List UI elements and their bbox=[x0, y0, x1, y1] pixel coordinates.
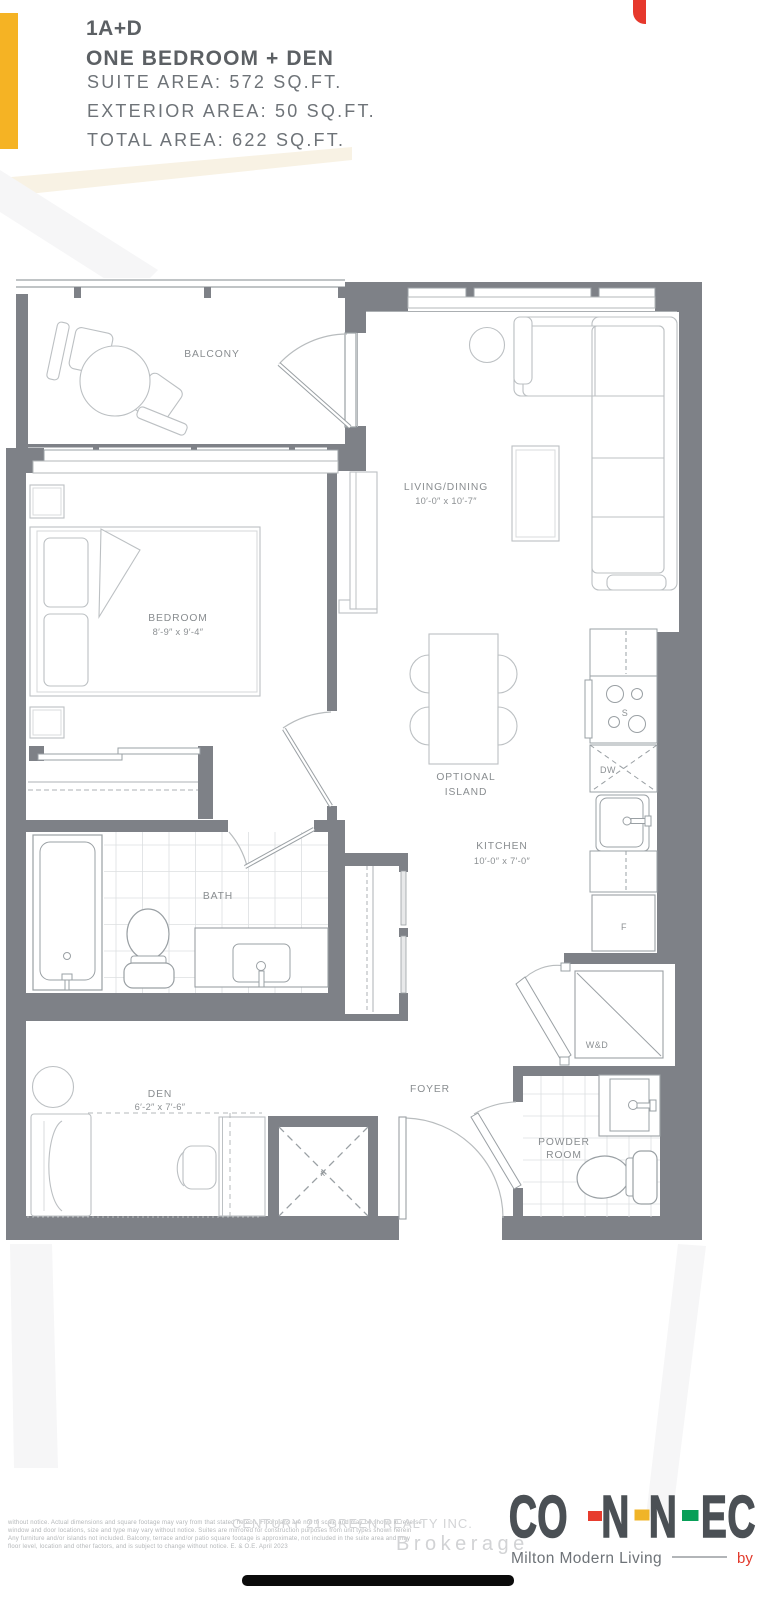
svg-text:BALCONY: BALCONY bbox=[184, 349, 240, 360]
svg-text:KITCHEN: KITCHEN bbox=[476, 841, 528, 852]
svg-text:ROOM: ROOM bbox=[546, 1150, 582, 1161]
svg-text:F: F bbox=[621, 922, 627, 932]
svg-text:O: O bbox=[537, 1484, 567, 1550]
svg-text:LIVING/DINING: LIVING/DINING bbox=[404, 482, 488, 493]
svg-text:EXTERIOR AREA: 50 SQ.FT.: EXTERIOR AREA: 50 SQ.FT. bbox=[87, 101, 376, 121]
svg-text:TOTAL AREA: 622 SQ.FT.: TOTAL AREA: 622 SQ.FT. bbox=[87, 130, 345, 150]
svg-text:CENTURY 21 GREEN REALTY INC.: CENTURY 21 GREEN REALTY INC. bbox=[232, 1516, 473, 1531]
svg-text:1A+D: 1A+D bbox=[86, 17, 142, 40]
svg-text:BATH: BATH bbox=[203, 891, 233, 902]
svg-text:E: E bbox=[701, 1484, 727, 1550]
svg-text:N: N bbox=[649, 1484, 677, 1550]
svg-text:POWDER: POWDER bbox=[538, 1137, 590, 1148]
svg-text:by: by bbox=[737, 1550, 753, 1567]
svg-text:C: C bbox=[727, 1484, 755, 1550]
svg-text:C: C bbox=[509, 1484, 537, 1550]
svg-text:N: N bbox=[601, 1484, 629, 1550]
svg-text:8′-9″ x 9′-4″: 8′-9″ x 9′-4″ bbox=[153, 627, 204, 637]
svg-text:floor level, location and othe: floor level, location and other factors,… bbox=[8, 1544, 288, 1550]
svg-text:ONE BEDROOM + DEN: ONE BEDROOM + DEN bbox=[86, 47, 334, 70]
svg-text:DEN: DEN bbox=[148, 1089, 172, 1100]
svg-text:DW: DW bbox=[600, 765, 616, 775]
svg-text:6′-2″ x 7′-6″: 6′-2″ x 7′-6″ bbox=[135, 1102, 186, 1112]
svg-text:SUITE AREA: 572 SQ.FT.: SUITE AREA: 572 SQ.FT. bbox=[87, 72, 342, 92]
svg-text:S: S bbox=[622, 708, 629, 718]
svg-text:Any furniture and/or islands n: Any furniture and/or islands not include… bbox=[8, 1536, 410, 1542]
svg-text:OPTIONAL: OPTIONAL bbox=[436, 772, 495, 783]
svg-text:10′-0″ x 7′-0″: 10′-0″ x 7′-0″ bbox=[474, 856, 531, 866]
svg-text:10′-0″ x 10′-7″: 10′-0″ x 10′-7″ bbox=[415, 496, 477, 506]
svg-text:x: x bbox=[321, 1168, 326, 1178]
svg-text:BEDROOM: BEDROOM bbox=[148, 613, 208, 624]
svg-text:FOYER: FOYER bbox=[410, 1084, 450, 1095]
svg-text:Milton Modern Living: Milton Modern Living bbox=[511, 1550, 662, 1567]
svg-text:ISLAND: ISLAND bbox=[445, 787, 488, 798]
svg-text:W&D: W&D bbox=[586, 1040, 609, 1050]
